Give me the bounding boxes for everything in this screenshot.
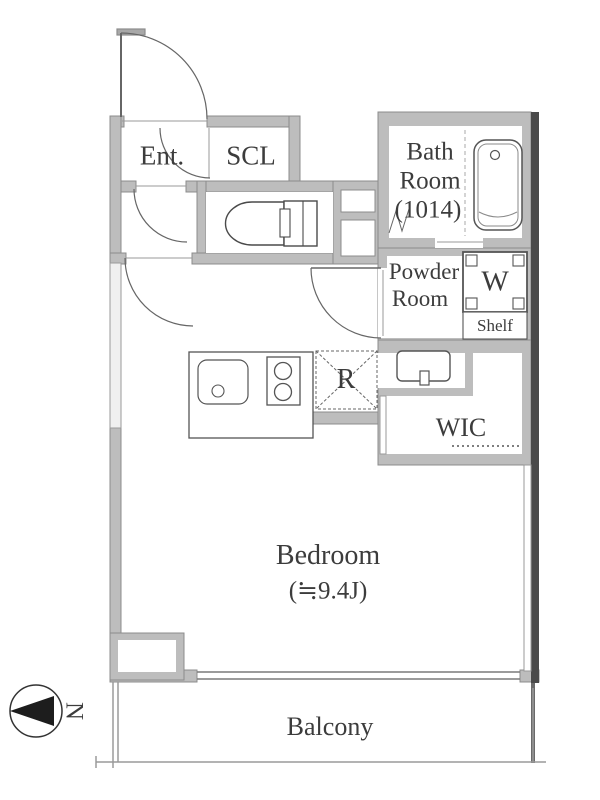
- label-powder-2: Room: [392, 286, 448, 312]
- burner: [275, 363, 292, 380]
- pipe-space-box: [341, 190, 375, 212]
- label-bath-1: Bath: [406, 139, 453, 168]
- label-north: N: [59, 702, 88, 720]
- powder-door-arc: [311, 268, 381, 338]
- label-bath-3: (1014): [395, 197, 462, 226]
- kitchen-sink-icon: [198, 360, 248, 404]
- label-entrance: Ent.: [140, 140, 184, 171]
- entrance-door-arc: [121, 33, 207, 119]
- kitchen-counter: [189, 352, 313, 438]
- bedroom-right-wall: [524, 465, 531, 671]
- sink-drain: [212, 385, 224, 397]
- label-scl: SCL: [226, 140, 276, 171]
- outer-edge: [531, 112, 539, 683]
- south-window: [197, 672, 520, 679]
- label-powder-1: Powder: [389, 259, 459, 285]
- floorplan: Ent. SCL Bath Room (1014) Powder Room W …: [0, 0, 600, 800]
- label-refrigerator: R: [337, 364, 356, 396]
- label-balcony: Balcony: [287, 712, 374, 742]
- hall-door-arc: [134, 189, 187, 242]
- label-washer: W: [481, 265, 508, 298]
- north-arrow-icon: [10, 685, 62, 737]
- pipe-space-box: [341, 220, 375, 256]
- label-shelf: Shelf: [477, 316, 513, 336]
- bedroom-door-arc: [125, 258, 193, 326]
- floorplan-linework: [0, 0, 600, 800]
- west-window: [110, 263, 121, 428]
- washbasin-icon: [397, 351, 450, 385]
- label-wic: WIC: [436, 413, 487, 443]
- burner: [275, 384, 292, 401]
- wic-entry: [380, 396, 386, 454]
- toilet-icon: [226, 201, 318, 246]
- label-bath-2: Room: [399, 168, 460, 197]
- label-bedroom: Bedroom: [276, 540, 380, 572]
- label-bedroom-size: (≒9.4J): [289, 578, 368, 607]
